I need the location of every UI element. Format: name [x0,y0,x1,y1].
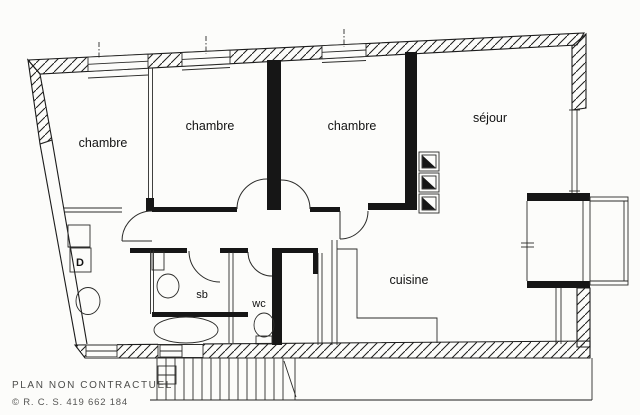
plan-registration: © R. C. S. 419 662 184 [12,397,128,408]
room-label-sejour: séjour [473,111,507,125]
bathtub [154,317,218,343]
wall-unit-symbols [419,152,439,213]
plan-disclaimer: PLAN NON CONTRACTUEL [12,380,173,391]
room-label-cuisine: cuisine [390,273,429,287]
window-sejour-right [569,110,580,193]
doors [122,179,368,282]
door-wc [248,252,272,276]
door-to-stairs [158,343,203,358]
room-label-chambre-1: chambre [79,136,128,150]
room-label-chambre-2: chambre [186,119,235,133]
windows [86,29,580,358]
room-label-chambre-3: chambre [328,119,377,133]
door-chambre-1 [122,211,152,241]
balcony [521,193,628,288]
door-sb [189,251,220,282]
dressing-cabinet [68,225,90,247]
wall-unit-symbol [419,152,439,171]
room-label-dressing: D [76,257,84,269]
floor-plan: chambre chambre chambre séjour cuisine s… [0,0,640,415]
stair-break-line [284,361,296,397]
wall-unit-symbol [419,194,439,213]
room-labels: chambre chambre chambre séjour cuisine s… [76,111,507,310]
window-chambre-1 [88,54,148,78]
exterior-walls [28,33,590,358]
window-chambre-3 [322,44,366,63]
staircase [150,358,592,400]
kitchen-counter [337,249,437,343]
footer: PLAN NON CONTRACTUEL © R. C. S. 419 662 … [12,380,173,408]
door-chambre-3 [281,180,310,209]
wall-unit-symbol [419,173,439,192]
door-cuisine [340,211,368,239]
floor-plan-drawing: chambre chambre chambre séjour cuisine s… [0,0,640,415]
washbasin-sb [157,274,179,298]
wall-chambre2-chambre3 [267,60,281,210]
window-bottom [86,344,117,358]
room-label-sb: sb [196,289,208,301]
wall-chambre3-sejour [405,52,417,209]
interior-walls [64,52,561,345]
room-label-wc: wc [251,298,266,310]
window-chambre-2 [182,50,230,70]
fixtures [68,152,439,344]
door-chambre-2 [237,179,267,209]
wall-wc-east [272,248,282,345]
toilet [254,313,274,344]
